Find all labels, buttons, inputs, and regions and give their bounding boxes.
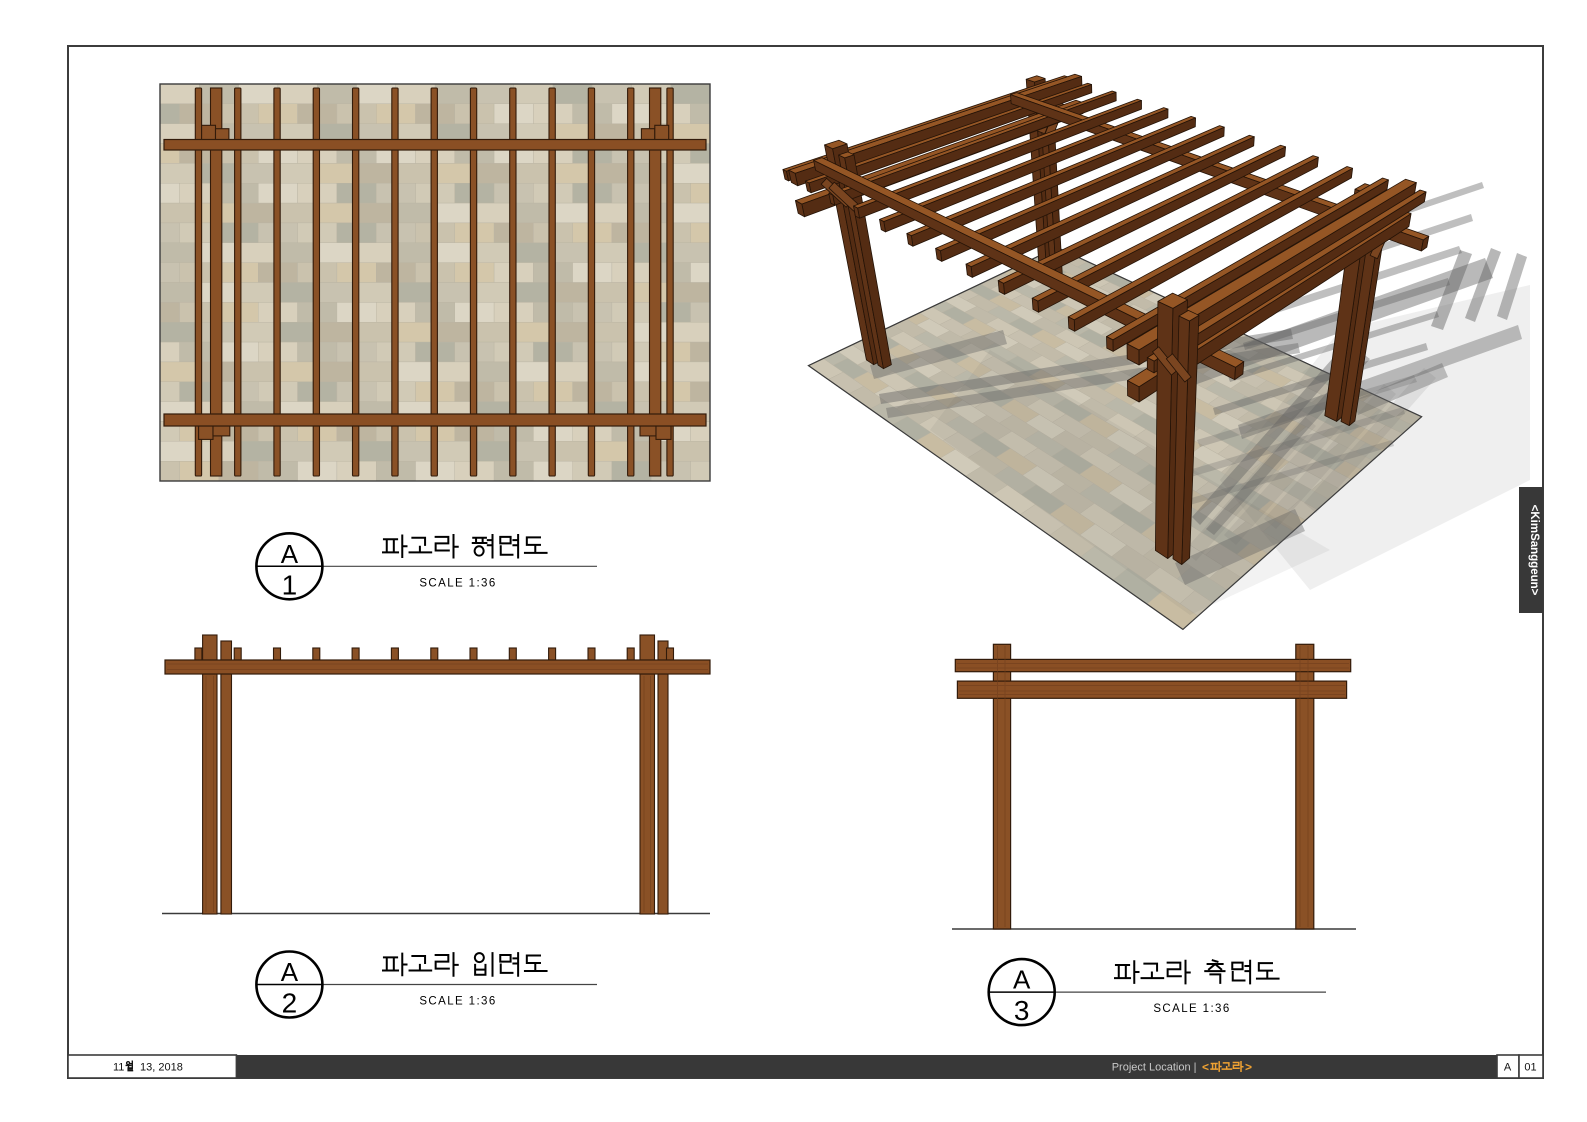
svg-text:A: A <box>1013 965 1031 995</box>
svg-text:A: A <box>281 957 299 987</box>
svg-text:11: 11 <box>113 1062 124 1074</box>
svg-text:SCALE 1:36: SCALE 1:36 <box>419 996 496 1008</box>
svg-text:2: 2 <box>282 988 298 1019</box>
svg-text:A: A <box>281 539 299 569</box>
svg-text:<KimSanggeun>: <KimSanggeun> <box>1528 505 1540 596</box>
svg-text:01: 01 <box>1524 1062 1536 1074</box>
svg-text:13, 2018: 13, 2018 <box>140 1062 183 1074</box>
svg-text:SCALE 1:36: SCALE 1:36 <box>419 577 496 589</box>
svg-text:A: A <box>1504 1062 1512 1074</box>
svg-text:Project Location |: Project Location | <box>1112 1062 1197 1074</box>
svg-text:>: > <box>1245 1060 1252 1074</box>
svg-text:<: < <box>1202 1060 1209 1074</box>
svg-text:1: 1 <box>282 569 298 600</box>
svg-text:3: 3 <box>1014 995 1030 1026</box>
svg-text:SCALE 1:36: SCALE 1:36 <box>1153 1003 1230 1015</box>
